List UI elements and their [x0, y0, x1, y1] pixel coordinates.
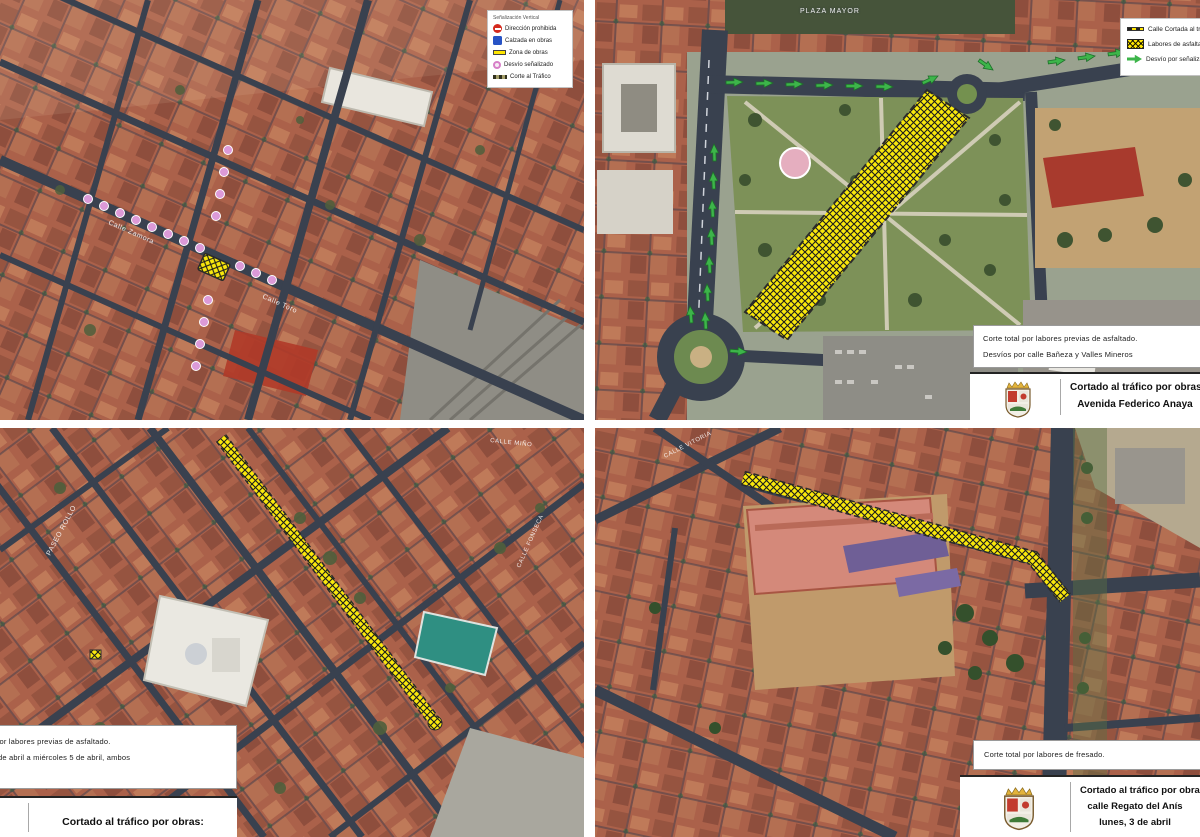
- no-entry-icon: [493, 24, 502, 33]
- traffic-works-map-collage: Calle Zamora Calle Toro Señalización Ver…: [0, 0, 1200, 837]
- legend-item: Dirección prohibida: [493, 24, 567, 33]
- works-zone-icon: [493, 50, 506, 55]
- traffic-cut-icon: [493, 75, 507, 79]
- banner-divider: [1070, 782, 1071, 832]
- legend-item: Labores de asfaltado: [1127, 39, 1200, 49]
- info-line: Corte total por labores previas de asfal…: [983, 331, 1193, 347]
- parking-lot: [1115, 448, 1185, 504]
- banner-title: Cortado al tráfico por obras:: [1070, 379, 1200, 396]
- quadrant-divider-vertical: [584, 0, 595, 837]
- info-line: Desvíos por calle Bañeza y Valles Minero…: [983, 347, 1193, 363]
- closure-banner: Cortado al tráfico por obras: calle Rega…: [960, 775, 1200, 837]
- info-line: Corte total por labores previas de asfal…: [0, 734, 226, 750]
- banner-divider: [28, 803, 29, 832]
- blue-square-sign-icon: [493, 36, 502, 45]
- salamanca-crest-icon: [1000, 784, 1038, 832]
- info-box: Corte total por labores de fresado.: [973, 740, 1200, 770]
- info-box: Corte total por labores previas de asfal…: [973, 325, 1200, 368]
- banner-title: Cortado al tráfico por obras:: [33, 814, 233, 832]
- map-bottom-right: CALLE VITORIA Corte total por labores de…: [595, 428, 1200, 837]
- salamanca-crest-icon: [1002, 379, 1034, 419]
- info-line: Corte total por labores de fresado.: [984, 747, 1192, 763]
- quadrant-divider-horizontal: [0, 420, 1200, 428]
- info-box: Corte total por labores previas de asfal…: [0, 725, 237, 789]
- plaza-label: PLAZA MAYOR: [800, 8, 860, 15]
- map-top-right: PLAZA MAYOR Calle Cortada al tráfico Lab…: [595, 0, 1200, 420]
- legend-title: Señalización Vertical: [493, 15, 567, 21]
- map-top-left: Calle Zamora Calle Toro Señalización Ver…: [0, 0, 584, 420]
- legend-top-left: Señalización Vertical Dirección prohibid…: [487, 10, 573, 88]
- info-line: Del lunes 3 de abril a miércoles 5 de ab…: [0, 750, 226, 766]
- banner-title: Cortado al tráfico por obras:: [1080, 783, 1190, 799]
- tree-row: [725, 0, 1015, 34]
- banner-line3: lunes, 3 de abril: [1080, 815, 1190, 831]
- map-bottom-left: PASEO ROLLO CALLE MIÑO CALLE FONSECA Cor…: [0, 428, 584, 837]
- playground: [780, 148, 810, 178]
- legend-item: Calzada en obras: [493, 36, 567, 45]
- legend-item: Zona de obras: [493, 48, 567, 57]
- legend-top-right: Calle Cortada al tráfico Labores de asfa…: [1120, 18, 1200, 76]
- asphalt-works-icon: [1127, 39, 1144, 49]
- legend-item: Corte al Tráfico: [493, 72, 567, 81]
- closure-banner: Cortado al tráfico por obras:: [0, 796, 237, 837]
- banner-line2: calle Regato del Anís: [1080, 799, 1190, 815]
- legend-item: Calle Cortada al tráfico: [1127, 24, 1200, 34]
- legend-item: Desvío señalizado: [493, 60, 567, 69]
- cut-street-line-icon: [1127, 27, 1144, 31]
- detour-arrow-icon: [1127, 54, 1142, 64]
- banner-divider: [1060, 379, 1061, 415]
- closure-banner: Cortado al tráfico por obras: Avenida Fe…: [970, 372, 1200, 420]
- signed-detour-icon: [493, 61, 501, 69]
- banner-subtitle: Avenida Federico Anaya: [1070, 396, 1200, 413]
- apartment-block: [597, 170, 673, 234]
- legend-item: Desvío por señalizar: [1127, 54, 1200, 64]
